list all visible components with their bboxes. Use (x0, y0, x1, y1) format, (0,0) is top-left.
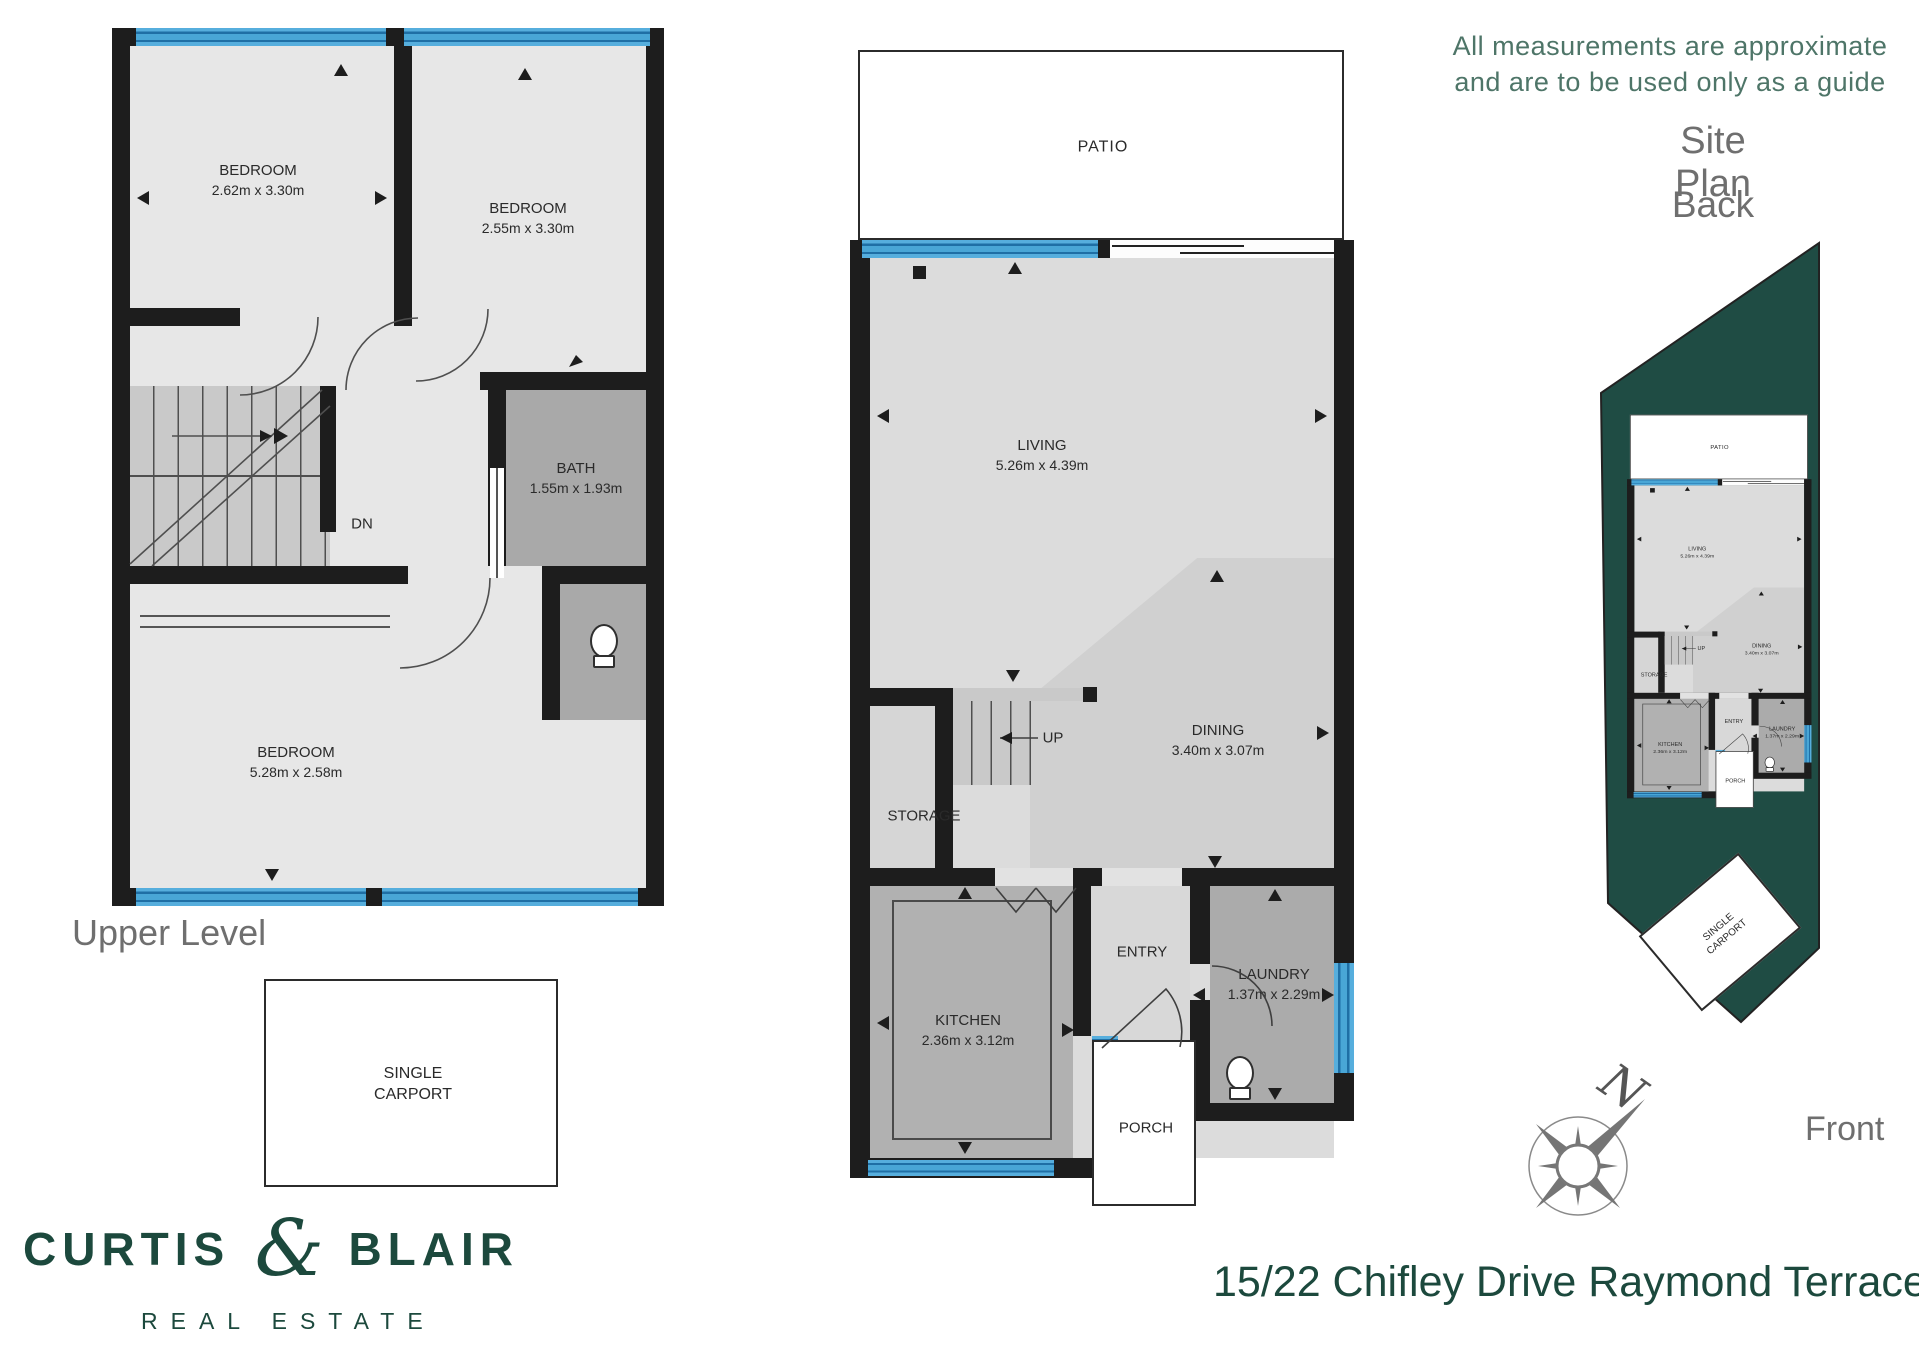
disclaimer-line2: and are to be used only as a guide (1440, 64, 1900, 100)
brand-name-curtis: CURTIS (23, 1222, 230, 1276)
brand-tagline: REAL ESTATE (141, 1308, 436, 1335)
window-icon (1334, 963, 1354, 1073)
entry-label: ENTRY (1117, 942, 1168, 962)
stairs-up (953, 701, 1031, 785)
window-icon (1804, 725, 1811, 762)
post (1712, 631, 1717, 636)
storage-floor (1634, 638, 1658, 693)
laundry-label: LAUNDRY1.37m x 2.29m (1228, 965, 1321, 1003)
entry-laundry-wall (1190, 868, 1210, 964)
window-icon (1631, 479, 1717, 485)
sliding-door-line (1180, 252, 1334, 254)
compass-north-label: N (1588, 1052, 1657, 1124)
disclaimer: All measurements are approximate and are… (1440, 28, 1900, 101)
bath-window-line (496, 468, 498, 578)
bedroom3-label: BEDROOM5.28m x 2.58m (250, 743, 343, 781)
wall (850, 688, 941, 706)
entry-opening (1102, 868, 1182, 886)
entry-floor (1091, 886, 1190, 1048)
window-icon (136, 28, 386, 46)
laundry-bottom-wall (1751, 773, 1811, 779)
bedroom-divider-wall (394, 46, 412, 326)
wall (130, 308, 240, 326)
robe-line (140, 615, 390, 617)
entry-floor (1715, 699, 1751, 754)
sliding-door (1110, 240, 1334, 258)
stairs-down-label: DN (351, 514, 373, 534)
site-mini-plan: PATIO STORAGE UP KITCHEN2.36m x 3.12m EN… (1627, 414, 1813, 810)
carport-box: SINGLECARPORT (264, 979, 558, 1187)
ground-level-plan: PATIO STORAGE UP KITCHEN2.36m x 3.12m EN… (1627, 414, 1812, 810)
property-address: 15/22 Chifley Drive Raymond Terrace (1213, 1258, 1919, 1307)
window-icon (868, 1160, 1054, 1176)
kitchen-door-opening (995, 868, 1075, 886)
wc-left-wall (542, 566, 560, 720)
site-carport-label: SINGLECARPORT (1696, 907, 1750, 958)
porch: PORCH (1092, 1040, 1196, 1206)
window-icon (1634, 792, 1702, 797)
stairs-mid-line (130, 475, 330, 477)
window-icon (404, 28, 650, 46)
kitchen-entry-wall (1709, 693, 1716, 750)
porch-label: PORCH (1119, 1118, 1173, 1138)
sliding-door-line (1723, 481, 1771, 482)
stairs-up (1665, 636, 1694, 665)
window-icon (136, 888, 366, 906)
floorplan-page: { "disclaimer": { "line1": "All measurem… (0, 0, 1919, 1357)
upper-level-title: Upper Level (72, 912, 266, 954)
porch: PORCH (1716, 751, 1754, 807)
porch-label: PORCH (1725, 778, 1745, 785)
site-plan-back-label: Back (1638, 184, 1788, 226)
bedroom3-top-wall (130, 566, 408, 584)
storage-label: STORAGE (887, 806, 960, 826)
stair-landing (953, 688, 1083, 701)
storage-label: STORAGE (1641, 672, 1668, 679)
toilet-icon (590, 624, 618, 668)
dining-label: DINING3.40m x 3.07m (1745, 643, 1779, 656)
patio: PATIO (1630, 415, 1808, 480)
wc-top-wall (542, 566, 664, 584)
window-icon (382, 888, 638, 906)
bedroom1-label: BEDROOM2.62m x 3.30m (212, 161, 305, 199)
column (1650, 488, 1655, 492)
toilet-icon (1765, 757, 1775, 772)
carport-label: SINGLECARPORT (374, 1064, 452, 1106)
post (1083, 687, 1097, 702)
kitchen-label: KITCHEN2.36m x 3.12m (922, 1011, 1015, 1049)
sliding-door-line (1112, 245, 1244, 247)
stairs-up-label: UP (1697, 645, 1705, 652)
entry-laundry-wall (1751, 693, 1758, 726)
stairs-right-wall (320, 386, 336, 532)
bedroom2-label: BEDROOM2.55m x 3.30m (482, 199, 575, 237)
brand-name-blair: BLAIR (348, 1222, 519, 1276)
robe-line (140, 626, 390, 628)
disclaimer-line1: All measurements are approximate (1440, 28, 1900, 64)
ground-level-plan: PATIO STORAGE UP KITCHEN2.36m x 3.12m EN… (850, 48, 1355, 1213)
toilet-icon (1226, 1056, 1254, 1100)
compass-icon: N (1502, 1046, 1658, 1246)
dining-label: DINING3.40m x 3.07m (1172, 721, 1265, 759)
laundry-bottom-wall (1190, 1103, 1354, 1121)
left-wall (850, 240, 870, 1178)
laundry-label: LAUNDRY1.37m x 2.29m (1765, 726, 1799, 739)
bath-label: BATH1.55m x 1.93m (530, 459, 623, 497)
kitchen-entry-wall (1073, 868, 1091, 1036)
patio: PATIO (858, 50, 1344, 240)
bath-top-wall (480, 372, 664, 390)
entry-label: ENTRY (1725, 718, 1744, 725)
patio-label: PATIO (1078, 138, 1129, 159)
site-plan-front-label: Front (1805, 1110, 1884, 1149)
stairs-up-label: UP (1043, 728, 1064, 748)
stairs-left-wall (935, 688, 953, 868)
brand-logo: CURTIS & BLAIR (23, 1218, 519, 1280)
living-label: LIVING5.26m x 4.39m (996, 436, 1089, 474)
sliding-door-line (1748, 483, 1804, 484)
column (913, 266, 926, 279)
upper-level-plan: BEDROOM2.62m x 3.30m BEDROOM2.55m x 3.30… (112, 28, 664, 906)
window-icon (862, 240, 1098, 258)
kitchen-label: KITCHEN2.36m x 3.12m (1653, 741, 1687, 754)
brand-ampersand-icon: & (255, 1218, 324, 1280)
living-label: LIVING5.26m x 4.39m (1680, 546, 1714, 559)
patio-label: PATIO (1710, 444, 1729, 451)
storage-floor (870, 706, 935, 868)
left-wall (1627, 479, 1634, 798)
